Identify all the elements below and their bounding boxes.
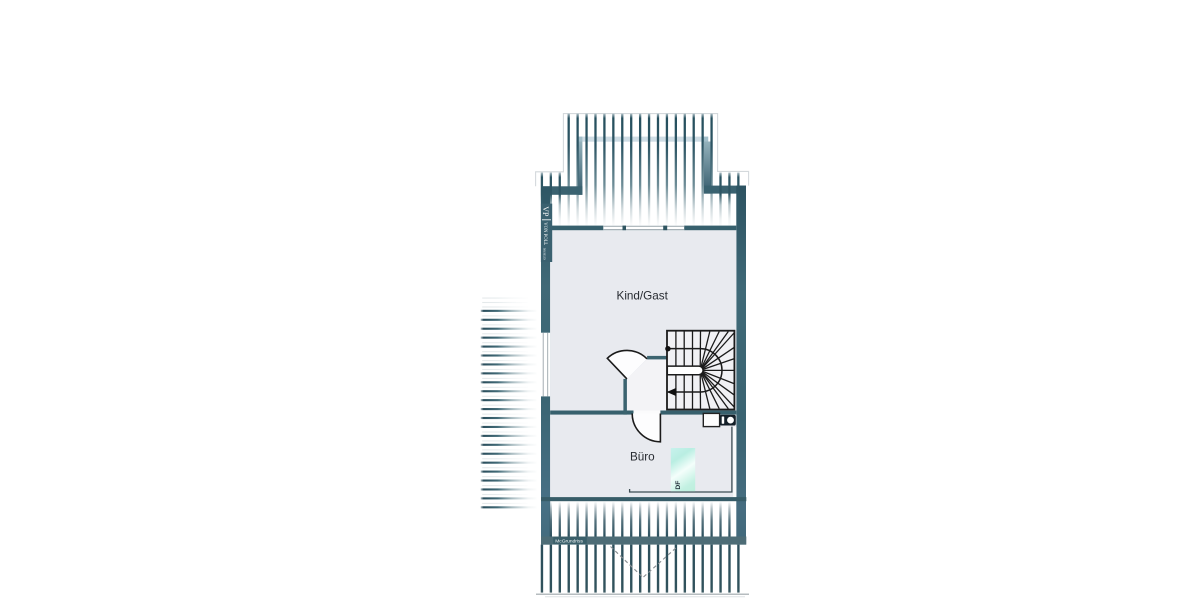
svg-text:IMMOBILIEN: IMMOBILIEN <box>542 248 545 260</box>
svg-text:Büro: Büro <box>630 451 655 464</box>
svg-text:Kind/Gast: Kind/Gast <box>617 290 669 303</box>
svg-text:VP: VP <box>541 206 550 217</box>
svg-text:McGrundriss: McGrundriss <box>555 539 583 545</box>
svg-text:DF: DF <box>675 481 682 490</box>
svg-text:VON POLL: VON POLL <box>542 222 548 245</box>
